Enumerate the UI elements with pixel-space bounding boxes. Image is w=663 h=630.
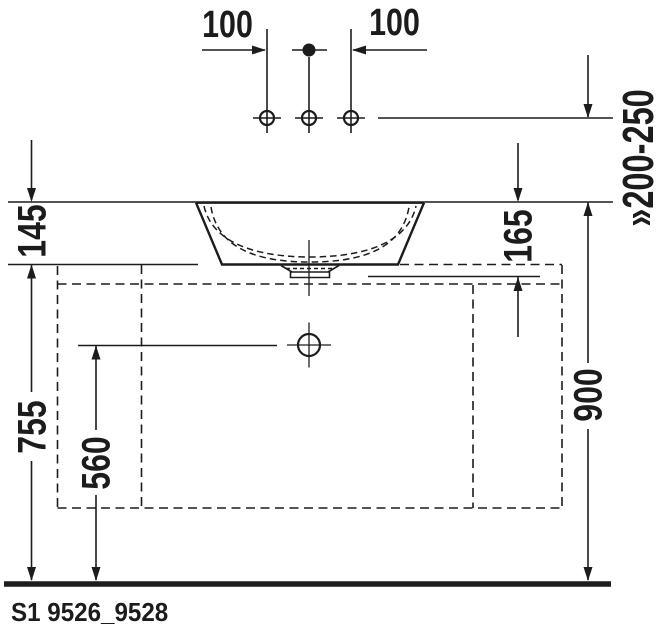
dimension-lines-group: [32, 55, 589, 580]
label-bowl-rim-height: 145: [9, 204, 54, 257]
technical-drawing-canvas: 100 100 145 165 »200-250 755 560 900 S1 …: [0, 0, 663, 630]
basin-hidden-contour-inner: [211, 207, 409, 262]
basin-outline: [196, 203, 424, 265]
basin-hidden-contour-outer: [204, 206, 416, 257]
drain-base: [291, 272, 330, 278]
arrow-down-165-top: [514, 188, 523, 202]
counter-hole-group: [287, 323, 331, 368]
center-point-dot: [303, 44, 316, 57]
arrow-down-145-top: [27, 188, 36, 202]
arrow-down-900-floor: [584, 567, 593, 581]
arrow-up-145-bottom: [27, 265, 36, 279]
arrow-up-900-top: [584, 202, 593, 216]
washbasin-dimension-drawing: 100 100 145 165 »200-250 755 560 900 S1 …: [0, 0, 663, 630]
label-outlet-height: 560: [73, 436, 118, 489]
labels-group: 100 100 145 165 »200-250 755 560 900 S1 …: [9, 2, 663, 627]
arrow-down-560-floor: [92, 567, 101, 581]
label-bowl-total-height: 165: [495, 209, 540, 262]
arrow-right-offset-left: [252, 46, 266, 55]
faucet-holes-group: [202, 29, 613, 133]
label-counter-height: 755: [9, 400, 54, 453]
arrow-down-755-floor: [27, 567, 36, 581]
label-faucet-height-range: »200-250: [614, 89, 663, 227]
label-offset-right: 100: [369, 2, 420, 44]
washbasin-group: [196, 203, 424, 296]
arrow-down-200-250: [584, 104, 593, 118]
arrow-left-offset-right: [352, 46, 366, 55]
arrow-up-560-top: [92, 346, 101, 360]
label-offset-left: 100: [202, 4, 253, 46]
label-rim-height: 900: [565, 368, 610, 421]
drawing-root: 100 100 145 165 »200-250 755 560 900 S1 …: [4, 2, 663, 627]
product-code: S1 9526_9528: [11, 598, 168, 627]
console-outline-group: [58, 265, 563, 509]
